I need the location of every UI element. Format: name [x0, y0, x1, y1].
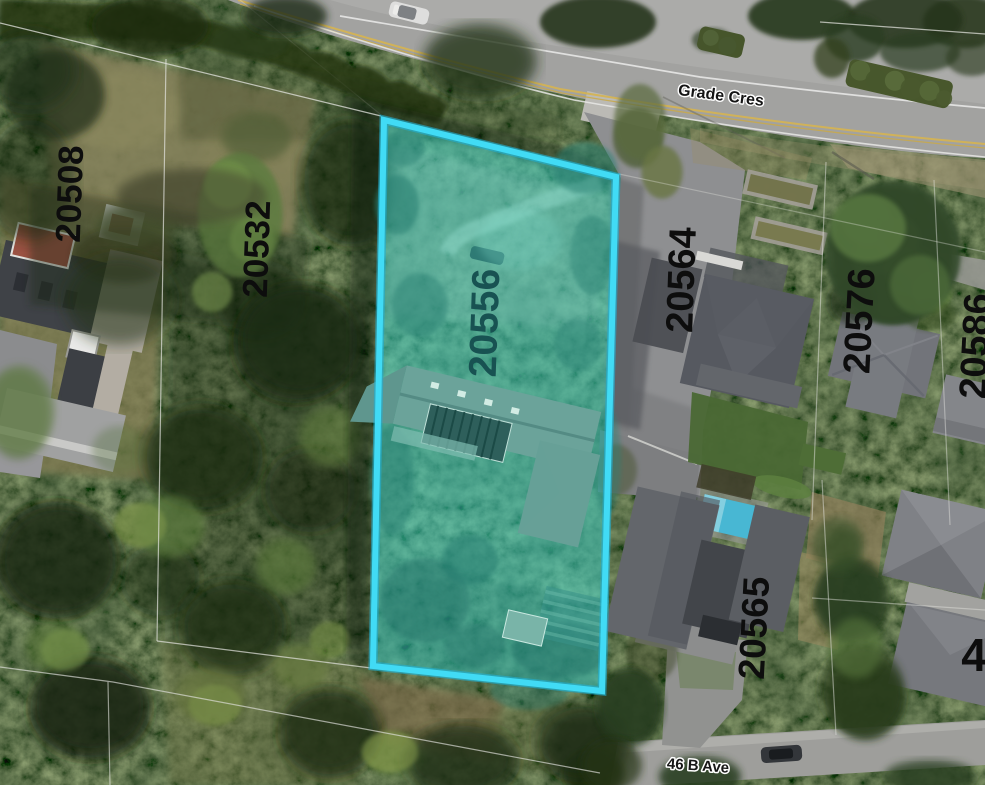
svg-text:20532: 20532 [236, 200, 278, 299]
svg-text:20556: 20556 [462, 268, 509, 378]
svg-text:20576: 20576 [836, 267, 883, 375]
svg-text:4: 4 [961, 629, 985, 681]
svg-text:20508: 20508 [49, 145, 91, 244]
svg-text:20565: 20565 [731, 576, 777, 681]
svg-text:20564: 20564 [659, 226, 705, 333]
svg-text:20586: 20586 [952, 292, 985, 400]
